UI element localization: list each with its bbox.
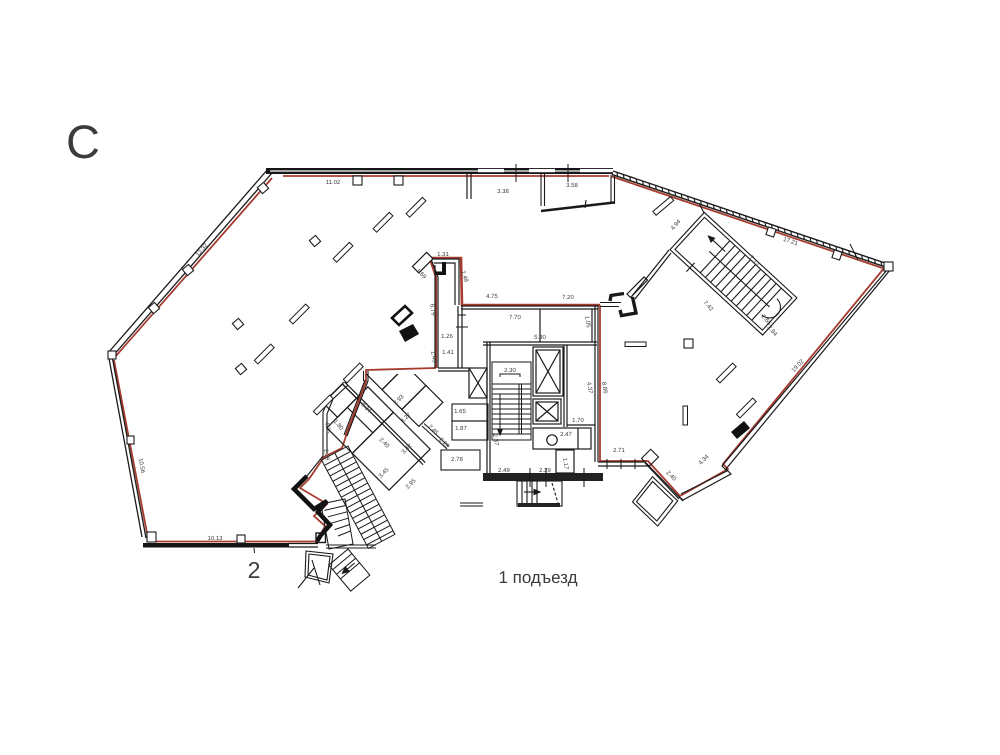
svg-text:2.47: 2.47 <box>560 431 572 438</box>
svg-text:3.58: 3.58 <box>566 182 578 189</box>
svg-text:7.20: 7.20 <box>562 294 574 301</box>
svg-text:3.38: 3.38 <box>497 188 509 195</box>
svg-text:11.02: 11.02 <box>326 179 341 186</box>
svg-text:2: 2 <box>248 557 261 583</box>
svg-text:2.30: 2.30 <box>504 367 516 374</box>
svg-text:10.13: 10.13 <box>207 535 223 542</box>
svg-text:1.87: 1.87 <box>455 425 467 432</box>
svg-text:7.70: 7.70 <box>509 314 521 321</box>
svg-text:2.71: 2.71 <box>613 447 625 454</box>
svg-text:1.41: 1.41 <box>442 349 454 356</box>
svg-text:1.26: 1.26 <box>441 333 453 340</box>
svg-text:2.49: 2.49 <box>498 467 510 474</box>
svg-text:1.65: 1.65 <box>454 408 466 415</box>
svg-text:1 подъезд: 1 подъезд <box>498 568 577 587</box>
svg-text:1.31: 1.31 <box>437 251 449 258</box>
svg-text:2.78: 2.78 <box>451 456 463 463</box>
svg-text:C: C <box>66 115 100 168</box>
svg-text:5.40: 5.40 <box>534 334 546 341</box>
svg-text:4.75: 4.75 <box>486 293 498 300</box>
svg-text:2.29: 2.29 <box>539 467 551 474</box>
svg-text:1.70: 1.70 <box>572 417 584 424</box>
